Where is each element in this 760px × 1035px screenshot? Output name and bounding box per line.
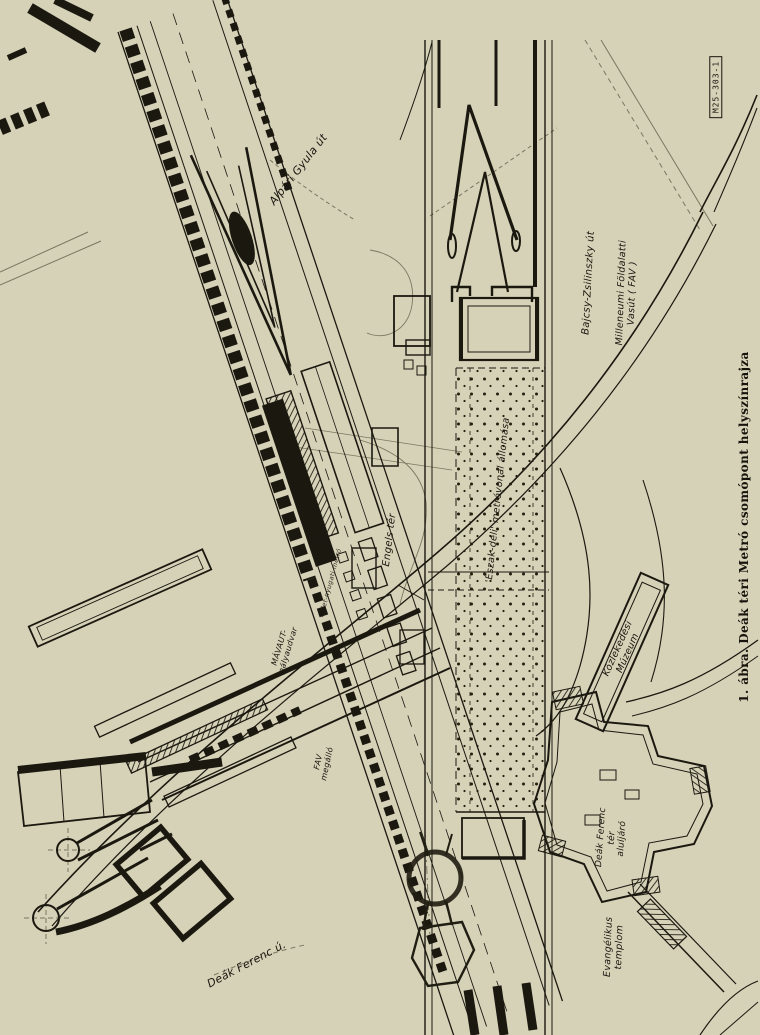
underpass-outline <box>534 686 712 902</box>
site-plan-sheet: M25-303-1 Alpári Gyula út Bajcsy-Zsilins… <box>0 0 760 1035</box>
label-deak-ferenc-ter-aluljaro: Deák Ferenc tér aluljáró <box>594 807 630 869</box>
drawing-number: M25-303-1 <box>709 56 722 118</box>
site-plan-drawing <box>0 0 760 1035</box>
bus-station-area <box>29 549 450 807</box>
rail-tie-marks <box>0 0 98 128</box>
label-evangelikus-templom: Evangélikus templom <box>602 916 627 977</box>
figure-caption: 1. ábra. Deák téri Metró csomópont helys… <box>737 351 751 702</box>
label-milleneumi-fav: Milleneumi Földalatti Vasút ( FAV ) <box>613 226 640 360</box>
church-area <box>628 884 758 1035</box>
